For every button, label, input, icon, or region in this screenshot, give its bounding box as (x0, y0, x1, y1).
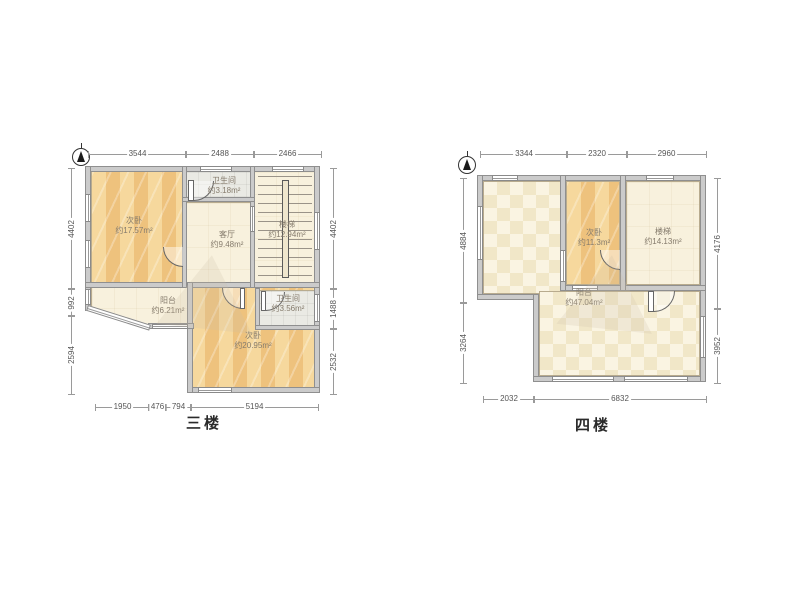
dim-top: 2466 (253, 151, 322, 158)
room-label-staircase-1: 楼梯 约12.94m² (257, 220, 317, 240)
window (624, 376, 688, 382)
door-leaf (240, 288, 245, 309)
room-label-livingroom: 客厅 约9.48m² (197, 230, 257, 250)
dim-bottom: 5194 (190, 404, 319, 411)
dim-top: 3544 (88, 151, 187, 158)
dim-top: 2488 (185, 151, 255, 158)
room-label-bedroom-1: 次卧 约17.57m² (104, 216, 164, 236)
dim-left: 992 (68, 288, 75, 317)
wall (533, 294, 539, 382)
window (477, 206, 483, 260)
room-label-staircase-2: 楼梯 约14.13m² (633, 227, 693, 247)
window (85, 289, 91, 305)
window (198, 387, 232, 393)
window (552, 376, 614, 382)
window (646, 175, 674, 181)
window (200, 166, 232, 172)
window (272, 166, 304, 172)
dim-bottom: 1950 (95, 404, 150, 411)
dim-left: 4884 (460, 178, 467, 304)
wall (182, 166, 187, 288)
dim-top: 3344 (480, 151, 568, 158)
floor-title-4: 四楼 (480, 414, 706, 435)
room-terrace-column (483, 181, 566, 294)
dim-right: 4176 (714, 178, 721, 310)
wall (255, 325, 320, 330)
floorplan-page: { "plans": [ { "title": "三楼", "dims": { … (0, 0, 800, 600)
dim-right: 4402 (330, 168, 337, 290)
dim-bottom: 2032 (483, 396, 535, 403)
room-label-bathroom-2: 卫生间 约3.56m² (260, 294, 316, 314)
window (85, 194, 91, 222)
dim-left: 2594 (68, 315, 75, 395)
window (85, 240, 91, 268)
dim-right: 2532 (330, 328, 337, 395)
room-label-bathroom-1: 卫生间 约3.18m² (196, 176, 252, 196)
window (152, 324, 188, 329)
room-label-bedroom-2: 次卧 约20.95m² (223, 331, 283, 351)
dim-top: 2320 (566, 151, 628, 158)
room-label-terrace: 阳台 约47.04m² (556, 288, 612, 308)
compass-north-icon (458, 156, 476, 174)
wall (314, 166, 320, 393)
room-label-balcony-1: 阳台 约6.21m² (138, 296, 198, 316)
wall (85, 282, 320, 288)
wall (477, 294, 539, 300)
dim-bottom: 6832 (533, 396, 707, 403)
window (560, 250, 566, 282)
window (492, 175, 518, 181)
dim-right: 3952 (714, 308, 721, 384)
dim-right: 1488 (330, 288, 337, 330)
dim-left: 4402 (68, 168, 75, 290)
dim-top: 2960 (626, 151, 707, 158)
dim-left: 3264 (460, 302, 467, 384)
floor-title-3: 三楼 (88, 412, 320, 433)
window (250, 206, 255, 232)
room-label-bedroom-3: 次卧 约11.3m² (566, 228, 622, 248)
window (700, 316, 706, 358)
dim-bottom: 794 (165, 404, 192, 411)
